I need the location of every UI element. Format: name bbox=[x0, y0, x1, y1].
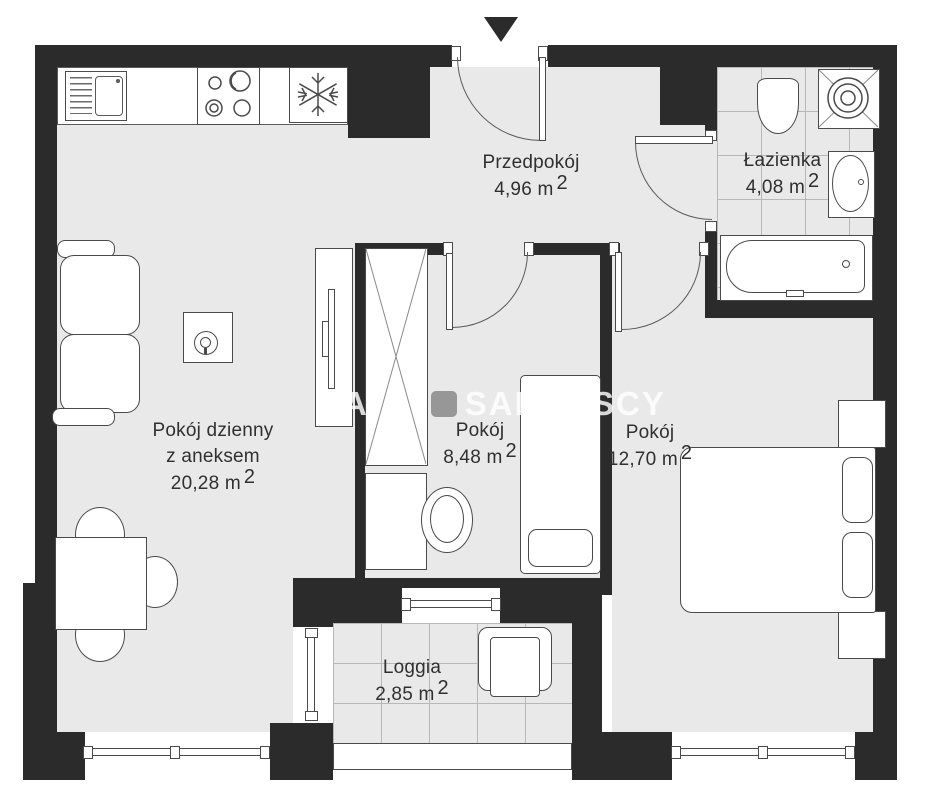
shower-icon bbox=[818, 69, 880, 129]
sink-tap-dot bbox=[116, 79, 120, 83]
window-mullion bbox=[305, 711, 318, 721]
loggia-window-glazing bbox=[405, 600, 497, 608]
room-area: 8,48 m2 bbox=[415, 444, 545, 471]
room-name: Loggia bbox=[347, 655, 477, 681]
sink-drainer bbox=[70, 77, 92, 114]
wall-bedroom-bottom-right bbox=[855, 732, 897, 780]
wall-left-upper bbox=[35, 45, 57, 583]
bathroom-door-leaf bbox=[635, 136, 713, 144]
bedroom-door-leaf bbox=[615, 252, 622, 332]
coffee-table bbox=[183, 312, 233, 363]
single-bed-pillow bbox=[528, 529, 593, 567]
floor-plan: Pokój dzienny z aneksem 20,28 m2 Przedpo… bbox=[0, 0, 926, 800]
window-mullion bbox=[845, 746, 855, 759]
desk bbox=[365, 473, 427, 570]
room-area: 12,70 m2 bbox=[585, 446, 715, 473]
wall-loggia-right bbox=[572, 623, 602, 780]
living-room-label: Pokój dzienny z aneksem 20,28 m2 bbox=[113, 418, 313, 497]
window-mullion bbox=[260, 746, 270, 759]
hallway-label: Przedpokój 4,96 m2 bbox=[446, 150, 616, 203]
window-mullion bbox=[305, 628, 318, 638]
stove-icon bbox=[197, 67, 260, 125]
watermark-brand: SADURSCY bbox=[465, 385, 666, 423]
room-name: Pokój bbox=[585, 420, 715, 446]
wall-bath-bottom bbox=[705, 300, 897, 318]
room-name: Łazienka bbox=[705, 148, 860, 174]
bathroom-label: Łazienka 4,08 m2 bbox=[705, 148, 860, 201]
entrance-arrow-icon bbox=[484, 17, 518, 42]
sofa-armrest-bottom bbox=[52, 408, 115, 426]
small-room-label: Pokój 8,48 m2 bbox=[415, 418, 545, 471]
bathtub-icon bbox=[720, 235, 873, 301]
kitchen-sink-icon bbox=[65, 71, 127, 121]
watermark-letter: A bbox=[343, 385, 369, 423]
room-area: 4,08 m2 bbox=[705, 174, 860, 201]
window-mullion bbox=[671, 746, 681, 759]
room-area: 20,28 m2 bbox=[113, 470, 313, 497]
window-mullion bbox=[170, 746, 180, 759]
desk-chair bbox=[421, 487, 473, 553]
sofa-cushion bbox=[60, 334, 140, 413]
nightstand bbox=[838, 611, 886, 659]
watermark-letter: A bbox=[389, 385, 415, 423]
nightstand bbox=[838, 400, 886, 448]
wall-bath-block bbox=[660, 45, 717, 125]
window-mullion bbox=[758, 746, 768, 759]
fridge bbox=[289, 67, 348, 123]
wall-bottom-left bbox=[57, 732, 85, 780]
bed-pillow bbox=[842, 532, 873, 598]
small-room-door-leaf bbox=[446, 253, 453, 330]
wall-loggia-left-upper bbox=[293, 583, 333, 627]
wall-top-right bbox=[717, 45, 897, 67]
wall-left-lower bbox=[23, 583, 57, 780]
room-name2: z aneksem bbox=[113, 444, 313, 470]
room-name: Przedpokój bbox=[446, 150, 616, 176]
bed-pillow bbox=[842, 457, 873, 523]
loggia-label: Loggia 2,85 m2 bbox=[347, 655, 477, 708]
snowflake-icon bbox=[290, 68, 346, 121]
window-mullion bbox=[401, 598, 411, 611]
loggia-chair-seat bbox=[490, 637, 540, 697]
wall-top-mid bbox=[548, 45, 660, 67]
sofa-cushion bbox=[60, 255, 140, 335]
watermark: A A SADURSCY bbox=[343, 385, 666, 423]
wall-bedroom-bottom-left bbox=[602, 732, 672, 780]
room-area: 2,85 m2 bbox=[347, 681, 477, 708]
tv-icon bbox=[328, 289, 335, 389]
tv-bracket bbox=[322, 321, 329, 357]
window-mullion bbox=[83, 746, 93, 759]
entrance-door-leaf bbox=[539, 57, 546, 141]
loggia-railing bbox=[333, 743, 572, 770]
dining-table bbox=[55, 537, 147, 630]
room-area: 4,96 m2 bbox=[446, 176, 616, 203]
wall-loggia-left-lower bbox=[270, 723, 333, 780]
bedroom-label: Pokój 12,70 m2 bbox=[585, 420, 715, 473]
plant-icon bbox=[194, 331, 218, 355]
window-mullion bbox=[491, 598, 501, 611]
bathroom-jamb-bottom bbox=[705, 221, 717, 232]
loggia-side-window-glazing bbox=[307, 630, 315, 720]
wall-kitchen-block bbox=[348, 45, 430, 138]
watermark-logo-icon bbox=[431, 391, 457, 417]
room-name: Pokój dzienny bbox=[113, 418, 313, 444]
